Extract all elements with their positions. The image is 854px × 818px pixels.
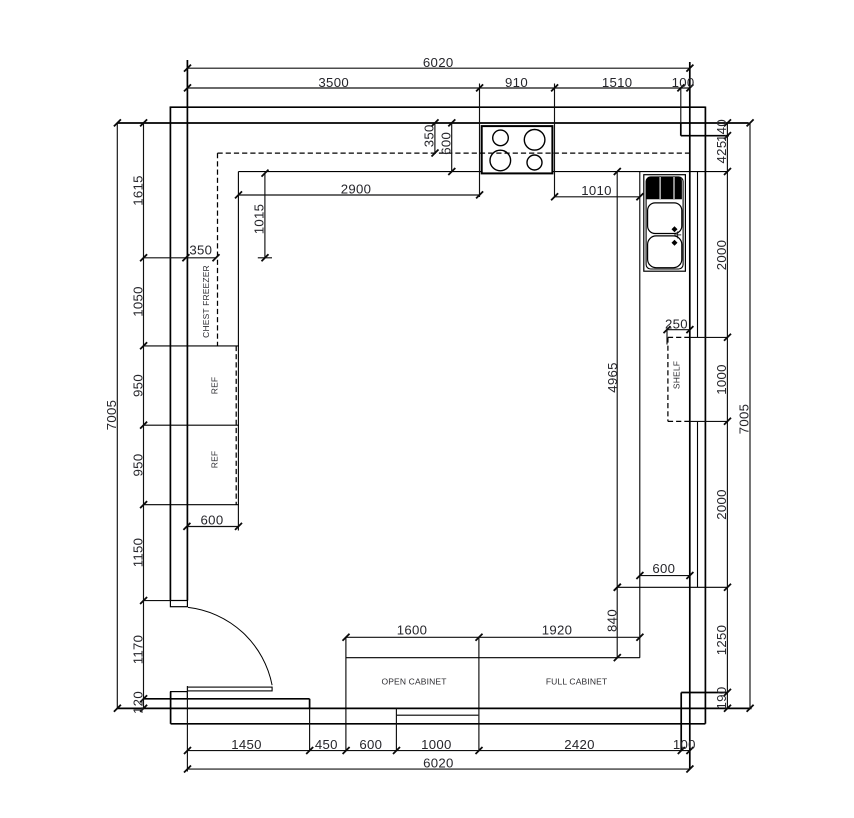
svg-text:2420: 2420 xyxy=(564,737,595,752)
svg-text:7005: 7005 xyxy=(104,400,119,431)
svg-text:4965: 4965 xyxy=(605,362,620,393)
svg-text:1250: 1250 xyxy=(714,625,729,656)
svg-text:1010: 1010 xyxy=(581,183,612,198)
svg-text:FULL CABINET: FULL CABINET xyxy=(546,676,607,686)
svg-text:140: 140 xyxy=(714,119,729,142)
svg-text:350: 350 xyxy=(189,243,212,258)
svg-text:OPEN CABINET: OPEN CABINET xyxy=(381,676,446,686)
svg-text:2000: 2000 xyxy=(714,240,729,271)
svg-text:120: 120 xyxy=(130,691,145,714)
svg-text:600: 600 xyxy=(652,561,675,576)
svg-text:SHELF: SHELF xyxy=(672,361,682,389)
svg-text:950: 950 xyxy=(130,454,145,477)
svg-text:100: 100 xyxy=(672,75,695,90)
svg-text:100: 100 xyxy=(673,737,696,752)
svg-text:2900: 2900 xyxy=(341,181,372,196)
svg-text:450: 450 xyxy=(315,737,338,752)
svg-text:1615: 1615 xyxy=(130,175,145,206)
svg-text:910: 910 xyxy=(505,75,528,90)
svg-text:425: 425 xyxy=(714,141,729,164)
svg-text:840: 840 xyxy=(605,609,620,632)
svg-text:6020: 6020 xyxy=(423,55,454,70)
svg-text:1450: 1450 xyxy=(231,737,262,752)
svg-text:REF: REF xyxy=(210,451,220,468)
svg-text:1000: 1000 xyxy=(714,364,729,395)
svg-text:250: 250 xyxy=(665,316,688,331)
svg-text:1000: 1000 xyxy=(421,737,452,752)
svg-text:3500: 3500 xyxy=(318,75,349,90)
svg-text:190: 190 xyxy=(714,687,729,710)
svg-text:REF: REF xyxy=(210,377,220,394)
svg-text:1600: 1600 xyxy=(397,623,428,638)
svg-text:600: 600 xyxy=(439,132,454,155)
svg-text:950: 950 xyxy=(130,374,145,397)
svg-text:6020: 6020 xyxy=(423,756,454,771)
svg-text:1050: 1050 xyxy=(130,286,145,317)
svg-text:1510: 1510 xyxy=(602,75,633,90)
svg-text:1150: 1150 xyxy=(130,538,145,568)
svg-text:1170: 1170 xyxy=(130,635,145,665)
svg-text:600: 600 xyxy=(201,512,224,527)
svg-text:1015: 1015 xyxy=(252,204,267,235)
svg-text:600: 600 xyxy=(359,737,382,752)
svg-text:CHEST FREEZER: CHEST FREEZER xyxy=(201,265,211,338)
svg-text:2000: 2000 xyxy=(714,489,729,520)
svg-text:350: 350 xyxy=(422,124,437,147)
svg-text:1920: 1920 xyxy=(542,623,573,638)
svg-text:7005: 7005 xyxy=(737,404,752,435)
